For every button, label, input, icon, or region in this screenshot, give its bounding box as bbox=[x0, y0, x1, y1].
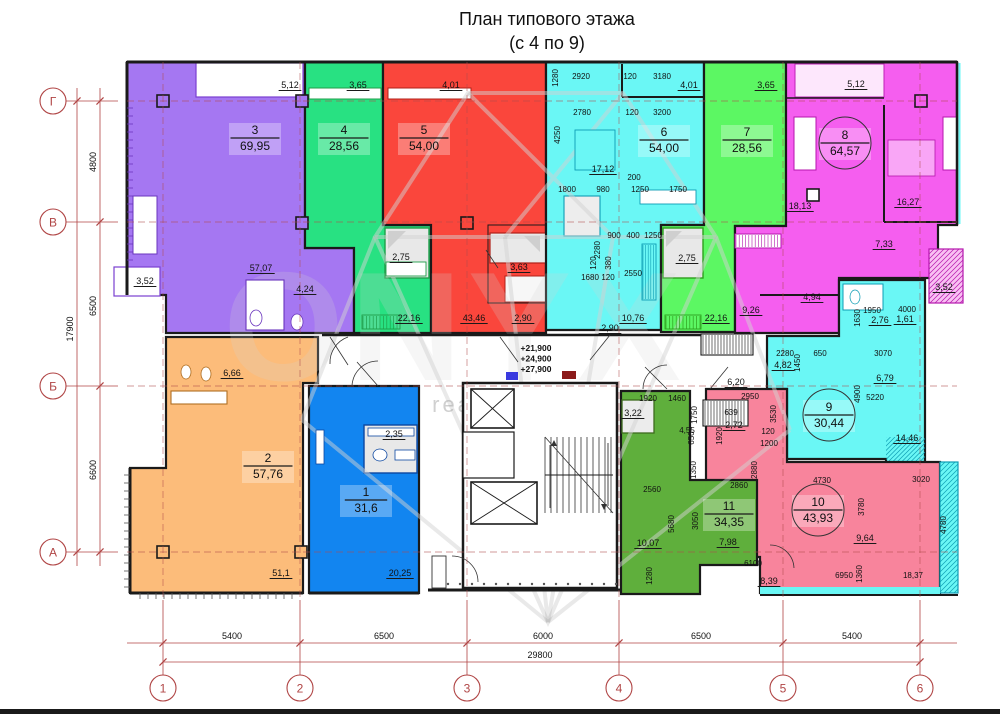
svg-text:639: 639 bbox=[724, 408, 738, 417]
svg-text:1360: 1360 bbox=[855, 565, 864, 583]
svg-text:3,65: 3,65 bbox=[757, 80, 775, 90]
svg-text:1,61: 1,61 bbox=[896, 314, 914, 324]
svg-text:3,52: 3,52 bbox=[935, 282, 953, 292]
svg-text:5220: 5220 bbox=[866, 393, 884, 402]
svg-text:9,64: 9,64 bbox=[856, 533, 874, 543]
svg-text:4,01: 4,01 bbox=[680, 80, 698, 90]
svg-text:7,98: 7,98 bbox=[719, 537, 737, 547]
svg-text:10: 10 bbox=[811, 495, 825, 509]
svg-text:2,75: 2,75 bbox=[678, 253, 696, 263]
svg-text:5680: 5680 bbox=[667, 515, 676, 533]
svg-text:3530: 3530 bbox=[769, 405, 778, 423]
svg-text:22,16: 22,16 bbox=[398, 313, 421, 323]
svg-text:200: 200 bbox=[627, 173, 641, 182]
svg-text:57,07: 57,07 bbox=[250, 263, 273, 273]
svg-text:20,25: 20,25 bbox=[389, 568, 412, 578]
svg-text:3020: 3020 bbox=[912, 475, 930, 484]
svg-text:7: 7 bbox=[744, 125, 751, 139]
svg-text:120: 120 bbox=[761, 427, 775, 436]
svg-text:11: 11 bbox=[723, 499, 736, 513]
svg-text:4800: 4800 bbox=[88, 152, 98, 172]
svg-text:9,26: 9,26 bbox=[742, 305, 760, 315]
svg-text:6100: 6100 bbox=[744, 559, 762, 568]
svg-text:17,12: 17,12 bbox=[592, 164, 615, 174]
svg-text:120: 120 bbox=[589, 256, 598, 270]
svg-text:120: 120 bbox=[625, 108, 639, 117]
svg-text:4,55: 4,55 bbox=[679, 426, 695, 435]
svg-text:2,90: 2,90 bbox=[601, 323, 619, 333]
svg-text:120: 120 bbox=[601, 273, 615, 282]
svg-text:6,79: 6,79 bbox=[876, 373, 894, 383]
svg-text:10,07: 10,07 bbox=[637, 538, 660, 548]
svg-text:2560: 2560 bbox=[643, 485, 661, 494]
svg-text:4000: 4000 bbox=[898, 305, 916, 314]
svg-text:30,44: 30,44 bbox=[814, 416, 844, 430]
svg-text:1950: 1950 bbox=[863, 306, 881, 315]
svg-text:2280: 2280 bbox=[776, 349, 794, 358]
svg-text:1800: 1800 bbox=[558, 185, 576, 194]
svg-text:6000: 6000 bbox=[533, 631, 553, 641]
svg-text:6600: 6600 bbox=[88, 460, 98, 480]
svg-text:54,00: 54,00 bbox=[649, 141, 679, 155]
svg-text:1680: 1680 bbox=[581, 273, 599, 282]
svg-text:5,12: 5,12 bbox=[847, 79, 865, 89]
svg-text:57,76: 57,76 bbox=[253, 467, 283, 481]
svg-text:28,56: 28,56 bbox=[732, 141, 762, 155]
svg-text:43,93: 43,93 bbox=[803, 511, 833, 525]
svg-text:1750: 1750 bbox=[669, 185, 687, 194]
svg-text:4250: 4250 bbox=[553, 126, 562, 144]
svg-text:3070: 3070 bbox=[874, 349, 892, 358]
svg-text:4780: 4780 bbox=[939, 516, 948, 534]
svg-text:5: 5 bbox=[780, 682, 787, 696]
svg-text:2: 2 bbox=[297, 682, 304, 696]
svg-text:1460: 1460 bbox=[668, 394, 686, 403]
svg-text:3,52: 3,52 bbox=[136, 276, 154, 286]
svg-text:1920: 1920 bbox=[639, 394, 657, 403]
svg-text:6500: 6500 bbox=[374, 631, 394, 641]
svg-text:1280: 1280 bbox=[645, 567, 654, 585]
svg-text:43,46: 43,46 bbox=[463, 313, 486, 323]
svg-text:2,35: 2,35 bbox=[385, 429, 403, 439]
svg-text:4,82: 4,82 bbox=[774, 360, 792, 370]
svg-text:31,6: 31,6 bbox=[354, 501, 378, 515]
svg-text:+21,900: +21,900 bbox=[521, 343, 552, 353]
svg-text:+24,900: +24,900 bbox=[521, 354, 552, 364]
svg-text:5,12: 5,12 bbox=[281, 80, 299, 90]
svg-text:План типового этажа: План типового этажа bbox=[459, 9, 636, 29]
svg-text:400: 400 bbox=[626, 231, 640, 240]
svg-text:1280: 1280 bbox=[551, 69, 560, 87]
svg-text:1350: 1350 bbox=[689, 461, 698, 479]
svg-text:4: 4 bbox=[616, 682, 623, 696]
svg-text:10,76: 10,76 bbox=[622, 313, 645, 323]
svg-text:7,33: 7,33 bbox=[875, 239, 893, 249]
svg-text:А: А bbox=[49, 546, 57, 560]
svg-text:5400: 5400 bbox=[222, 631, 242, 641]
svg-text:2,75: 2,75 bbox=[392, 252, 410, 262]
svg-text:2780: 2780 bbox=[573, 108, 591, 117]
svg-text:34,35: 34,35 bbox=[714, 515, 744, 529]
svg-text:1920: 1920 bbox=[715, 427, 724, 445]
svg-text:3: 3 bbox=[252, 123, 259, 137]
svg-text:Б: Б bbox=[49, 380, 57, 394]
svg-text:380: 380 bbox=[604, 256, 613, 270]
svg-text:1250: 1250 bbox=[631, 185, 649, 194]
svg-text:8,39: 8,39 bbox=[760, 576, 778, 586]
svg-text:5: 5 bbox=[421, 123, 428, 137]
svg-text:4730: 4730 bbox=[813, 476, 831, 485]
svg-text:18,13: 18,13 bbox=[789, 201, 812, 211]
svg-text:1: 1 bbox=[363, 485, 370, 499]
svg-text:3200: 3200 bbox=[653, 108, 671, 117]
svg-text:6,66: 6,66 bbox=[223, 368, 241, 378]
svg-text:6950: 6950 bbox=[835, 571, 853, 580]
svg-text:3180: 3180 bbox=[653, 72, 671, 81]
svg-text:29800: 29800 bbox=[527, 650, 552, 660]
svg-text:2860: 2860 bbox=[730, 481, 748, 490]
svg-text:Г: Г bbox=[50, 95, 57, 109]
svg-text:6500: 6500 bbox=[691, 631, 711, 641]
svg-text:1250: 1250 bbox=[644, 231, 662, 240]
svg-text:1750: 1750 bbox=[690, 406, 699, 424]
svg-text:980: 980 bbox=[596, 185, 610, 194]
svg-text:6,20: 6,20 bbox=[727, 377, 745, 387]
svg-text:54,00: 54,00 bbox=[409, 139, 439, 153]
svg-text:3: 3 bbox=[464, 682, 471, 696]
svg-text:6500: 6500 bbox=[88, 296, 98, 316]
svg-text:3,63: 3,63 bbox=[510, 262, 528, 272]
svg-text:2550: 2550 bbox=[624, 269, 642, 278]
svg-text:6: 6 bbox=[661, 125, 668, 139]
svg-text:22,16: 22,16 bbox=[705, 313, 728, 323]
svg-text:3050: 3050 bbox=[691, 512, 700, 530]
svg-text:5400: 5400 bbox=[842, 631, 862, 641]
svg-text:1450: 1450 bbox=[793, 354, 802, 372]
svg-text:(с 4 по 9): (с 4 по 9) bbox=[509, 33, 585, 53]
svg-text:9: 9 bbox=[826, 400, 833, 414]
svg-text:3,22: 3,22 bbox=[624, 408, 642, 418]
svg-text:18,37: 18,37 bbox=[903, 571, 924, 580]
svg-text:17900: 17900 bbox=[65, 316, 75, 341]
svg-text:2880: 2880 bbox=[750, 461, 759, 479]
svg-text:4,01: 4,01 bbox=[442, 80, 460, 90]
svg-text:4,24: 4,24 bbox=[296, 284, 314, 294]
svg-text:69,95: 69,95 bbox=[240, 139, 270, 153]
svg-text:64,57: 64,57 bbox=[830, 144, 860, 158]
svg-text:2950: 2950 bbox=[741, 392, 759, 401]
svg-text:28,56: 28,56 bbox=[329, 139, 359, 153]
svg-text:2,72: 2,72 bbox=[725, 420, 743, 430]
svg-text:2920: 2920 bbox=[572, 72, 590, 81]
svg-text:3,65: 3,65 bbox=[349, 80, 367, 90]
svg-text:51,1: 51,1 bbox=[272, 568, 290, 578]
svg-text:2,76: 2,76 bbox=[871, 315, 889, 325]
svg-text:120: 120 bbox=[623, 72, 637, 81]
svg-text:16,27: 16,27 bbox=[897, 197, 920, 207]
svg-text:2,90: 2,90 bbox=[514, 313, 532, 323]
svg-text:650: 650 bbox=[813, 349, 827, 358]
svg-text:14,46: 14,46 bbox=[896, 433, 919, 443]
svg-text:2280: 2280 bbox=[593, 241, 602, 259]
svg-text:1200: 1200 bbox=[760, 439, 778, 448]
svg-text:8: 8 bbox=[842, 128, 849, 142]
svg-text:В: В bbox=[49, 216, 57, 230]
svg-text:900: 900 bbox=[607, 231, 621, 240]
svg-text:6: 6 bbox=[917, 682, 924, 696]
svg-text:4900: 4900 bbox=[853, 385, 862, 403]
svg-text:+27,900: +27,900 bbox=[521, 364, 552, 374]
svg-text:4,94: 4,94 bbox=[803, 292, 821, 302]
svg-text:3780: 3780 bbox=[857, 498, 866, 516]
svg-text:4: 4 bbox=[341, 123, 348, 137]
svg-text:1: 1 bbox=[160, 682, 167, 696]
svg-text:1630: 1630 bbox=[853, 309, 862, 327]
svg-text:2: 2 bbox=[265, 451, 272, 465]
